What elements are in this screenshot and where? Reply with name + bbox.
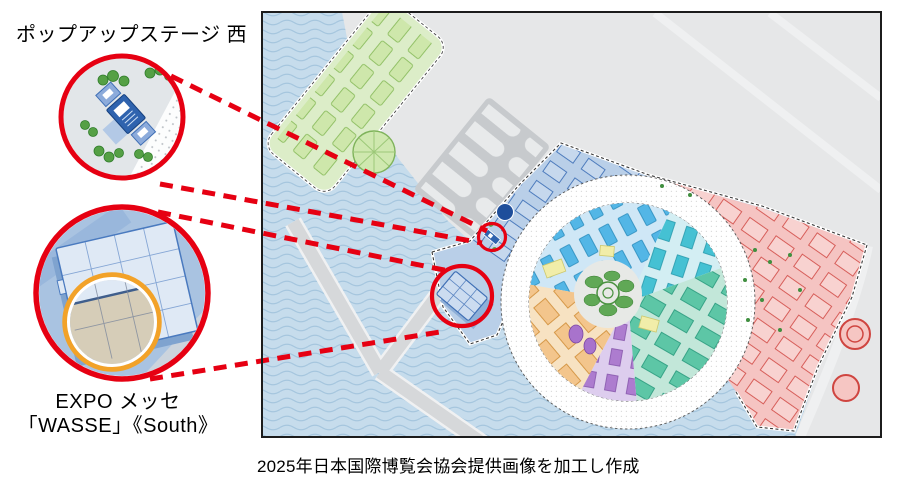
callout-wasse	[0, 204, 208, 379]
popup-stage-label: ポップアップステージ 西	[16, 18, 247, 47]
expo-messe-label: EXPO メッセ 「WASSE」《South》	[6, 390, 230, 438]
image-credit-caption: 2025年日本国際博覧会協会提供画像を加工し作成	[257, 452, 640, 477]
expo-messe-label-line2: 「WASSE」《South》	[6, 414, 230, 438]
figure: ポップアップステージ 西 EXPO メッセ 「WASSE」《South》 202…	[0, 0, 900, 484]
callout-popup-stage	[61, 54, 246, 223]
site-map	[262, 0, 881, 450]
expo-messe-label-line1: EXPO メッセ	[6, 390, 230, 414]
navy-pavilion-dot	[497, 204, 514, 221]
